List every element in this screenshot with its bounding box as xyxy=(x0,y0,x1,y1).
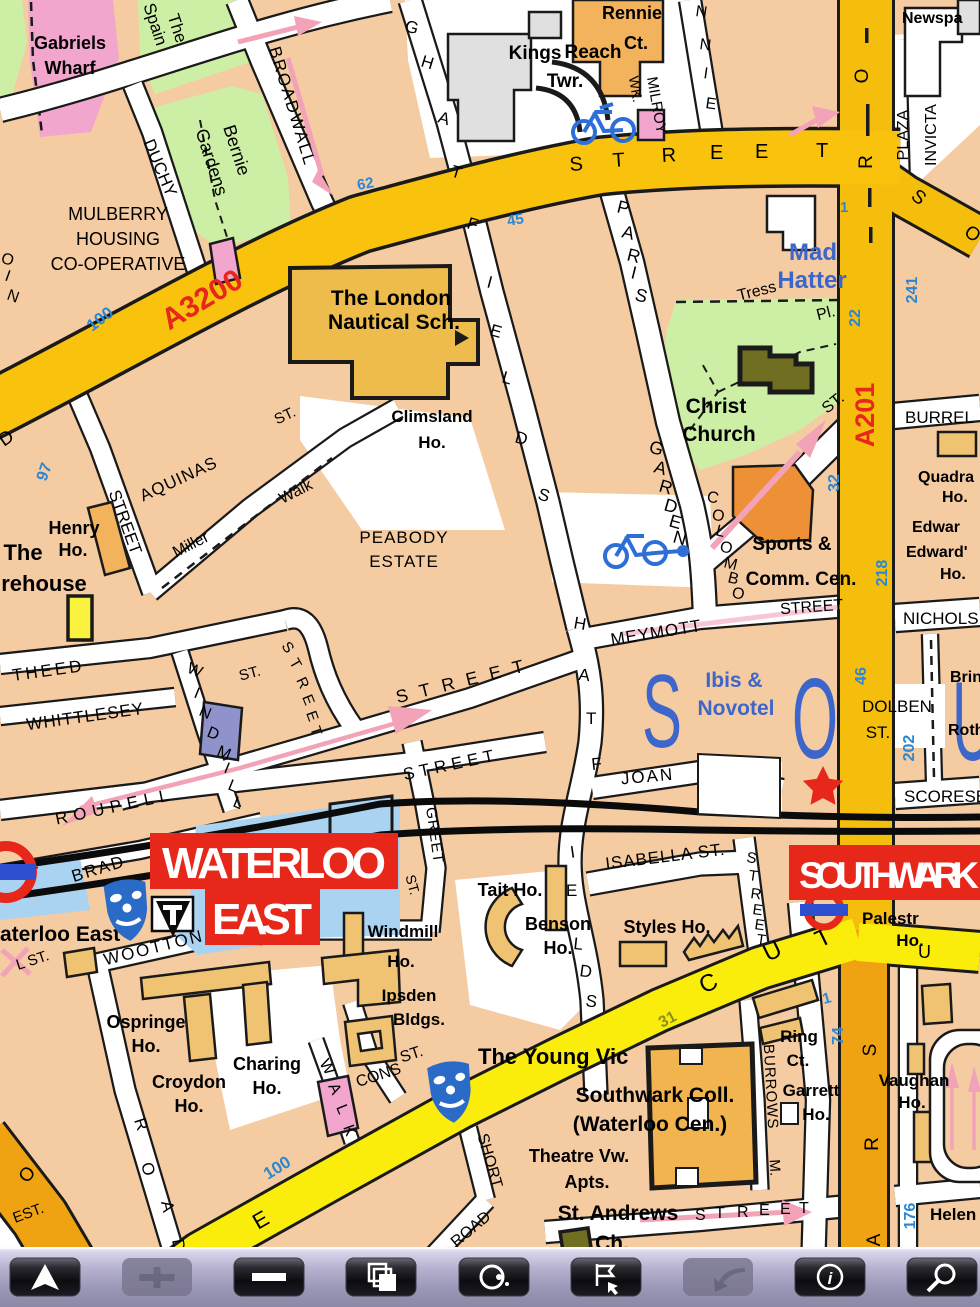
svg-text:Rennie: Rennie xyxy=(602,3,662,23)
svg-text:Newspa: Newspa xyxy=(902,10,963,27)
svg-text:32: 32 xyxy=(826,474,843,492)
svg-text:Twr.: Twr. xyxy=(547,71,584,92)
svg-text:Ho.: Ho. xyxy=(59,540,88,560)
svg-text:ESTATE: ESTATE xyxy=(369,552,439,571)
svg-text:O: O xyxy=(852,69,873,84)
svg-text:EAST: EAST xyxy=(212,895,312,944)
svg-text:Theatre Vw.: Theatre Vw. xyxy=(529,1146,629,1166)
svg-text:The: The xyxy=(3,540,42,565)
svg-text:N: N xyxy=(698,36,712,54)
svg-text:74: 74 xyxy=(830,1027,847,1045)
svg-text:E: E xyxy=(780,1201,791,1218)
svg-text:R: R xyxy=(856,155,877,169)
svg-text:A201: A201 xyxy=(850,383,880,448)
svg-text:S: S xyxy=(695,1207,706,1224)
svg-text:DOLBEN: DOLBEN xyxy=(862,697,932,716)
svg-text:45: 45 xyxy=(506,210,525,230)
svg-text:S: S xyxy=(860,1044,881,1057)
svg-text:R: R xyxy=(737,1204,749,1221)
svg-text:The Young Vic: The Young Vic xyxy=(478,1044,628,1069)
svg-text:BURREL: BURREL xyxy=(905,408,974,427)
svg-text:SCORESB: SCORESB xyxy=(904,787,980,806)
svg-text:Helen: Helen xyxy=(930,1205,976,1224)
svg-text:L: L xyxy=(573,934,584,954)
svg-text:Reach: Reach xyxy=(564,42,621,63)
svg-text:St. Andrews: St. Andrews xyxy=(558,1202,679,1225)
svg-text:176: 176 xyxy=(902,1203,919,1230)
svg-text:Wharf: Wharf xyxy=(45,58,97,78)
svg-text:Mad: Mad xyxy=(789,239,837,266)
svg-text:Benson: Benson xyxy=(525,914,591,934)
svg-text:Ibis &: Ibis & xyxy=(705,669,762,692)
svg-text:Hatter: Hatter xyxy=(777,267,846,294)
svg-text:Ho.: Ho. xyxy=(387,952,414,971)
svg-text:N: N xyxy=(694,3,708,21)
svg-text:INVICTA: INVICTA xyxy=(923,104,940,166)
svg-text:WATERLOO: WATERLOO xyxy=(162,839,386,888)
svg-text:E: E xyxy=(759,1202,770,1219)
svg-text:CO-OPERATIVE: CO-OPERATIVE xyxy=(51,254,186,274)
svg-text:E: E xyxy=(710,142,723,164)
svg-text:(Waterloo Cen.): (Waterloo Cen.) xyxy=(573,1113,727,1136)
svg-text:Sports &: Sports & xyxy=(752,534,831,555)
svg-text:Kings: Kings xyxy=(509,43,562,64)
svg-text:aterloo East: aterloo East xyxy=(0,923,120,946)
svg-text:Edward': Edward' xyxy=(906,544,968,561)
svg-text:M.: M. xyxy=(766,1159,784,1177)
svg-text:Novotel: Novotel xyxy=(697,697,774,720)
svg-text:O: O xyxy=(792,656,838,783)
svg-text:D: D xyxy=(578,961,593,982)
svg-text:MULBERRY: MULBERRY xyxy=(68,204,168,224)
svg-text:T: T xyxy=(799,1200,809,1217)
svg-text:F: F xyxy=(590,754,602,774)
svg-text:The London: The London xyxy=(331,287,451,310)
svg-text:S: S xyxy=(569,153,584,176)
svg-text:Ipsden: Ipsden xyxy=(382,986,437,1005)
svg-text:Ho.: Ho. xyxy=(253,1078,282,1098)
svg-text:Bldgs.: Bldgs. xyxy=(393,1010,445,1029)
svg-text:Palestr: Palestr xyxy=(862,909,919,928)
svg-text:Ho.: Ho. xyxy=(898,1093,925,1112)
svg-text:Comm. Cen.: Comm. Cen. xyxy=(746,569,857,590)
svg-text:Tait Ho.: Tait Ho. xyxy=(478,880,543,900)
svg-text:T: T xyxy=(612,149,626,172)
svg-text:Garrett: Garrett xyxy=(783,1081,840,1100)
svg-text:Ho.: Ho. xyxy=(942,489,968,506)
svg-text:Christ: Christ xyxy=(686,395,747,418)
svg-text:Ho.: Ho. xyxy=(940,566,966,583)
svg-text:ST.: ST. xyxy=(866,723,891,742)
svg-text:22: 22 xyxy=(847,309,864,327)
svg-text:241: 241 xyxy=(904,277,921,304)
svg-text:Church: Church xyxy=(682,423,756,446)
svg-text:Ct.: Ct. xyxy=(624,33,648,53)
svg-text:Quadra: Quadra xyxy=(918,469,974,486)
svg-text:PEABODY: PEABODY xyxy=(359,528,448,547)
svg-text:Ho.: Ho. xyxy=(544,938,573,958)
svg-text:NICHOLS: NICHOLS xyxy=(903,609,979,628)
svg-text:202: 202 xyxy=(901,735,918,762)
svg-text:Ho.: Ho. xyxy=(896,931,923,950)
svg-text:Windmill: Windmill xyxy=(368,922,439,941)
svg-text:HOUSING: HOUSING xyxy=(76,229,160,249)
svg-text:Ho.: Ho. xyxy=(175,1096,204,1116)
svg-text:rehouse: rehouse xyxy=(1,571,87,596)
svg-text:Ho.: Ho. xyxy=(418,433,445,452)
svg-text:Ospringe: Ospringe xyxy=(106,1012,185,1032)
svg-text:Ho.: Ho. xyxy=(132,1036,161,1056)
svg-text:218: 218 xyxy=(874,560,891,587)
svg-text:62: 62 xyxy=(356,174,375,194)
svg-text:E: E xyxy=(566,881,577,900)
svg-text:Climsland: Climsland xyxy=(391,407,472,426)
svg-text:Ho.: Ho. xyxy=(802,1105,829,1124)
svg-text:T: T xyxy=(816,140,828,162)
svg-text:Edwar: Edwar xyxy=(912,519,960,536)
svg-text:PLAZA: PLAZA xyxy=(895,109,912,160)
svg-text:Croydon: Croydon xyxy=(152,1072,226,1092)
svg-text:E: E xyxy=(755,141,768,163)
svg-text:T: T xyxy=(715,1205,725,1222)
svg-text:Styles Ho.: Styles Ho. xyxy=(623,917,710,937)
svg-text:Ct.: Ct. xyxy=(787,1051,810,1070)
svg-text:R: R xyxy=(661,144,677,167)
svg-text:Ring: Ring xyxy=(780,1027,818,1046)
svg-text:T: T xyxy=(586,709,596,728)
svg-text:Vaughan: Vaughan xyxy=(879,1071,950,1090)
svg-text:1: 1 xyxy=(840,199,848,216)
svg-text:Gabriels: Gabriels xyxy=(34,33,106,53)
svg-text:Brin: Brin xyxy=(950,669,980,686)
svg-text:S: S xyxy=(642,654,682,770)
svg-text:Henry: Henry xyxy=(48,518,99,538)
svg-text:R: R xyxy=(862,1137,883,1151)
svg-text:46: 46 xyxy=(853,667,870,685)
svg-text:A: A xyxy=(864,1233,885,1246)
svg-text:Apts.: Apts. xyxy=(565,1172,610,1192)
svg-text:Nautical Sch.: Nautical Sch. xyxy=(328,311,460,334)
svg-text:Charing: Charing xyxy=(233,1054,301,1074)
svg-text:Roth: Roth xyxy=(948,722,980,739)
svg-text:Southwark Coll.: Southwark Coll. xyxy=(576,1084,735,1107)
